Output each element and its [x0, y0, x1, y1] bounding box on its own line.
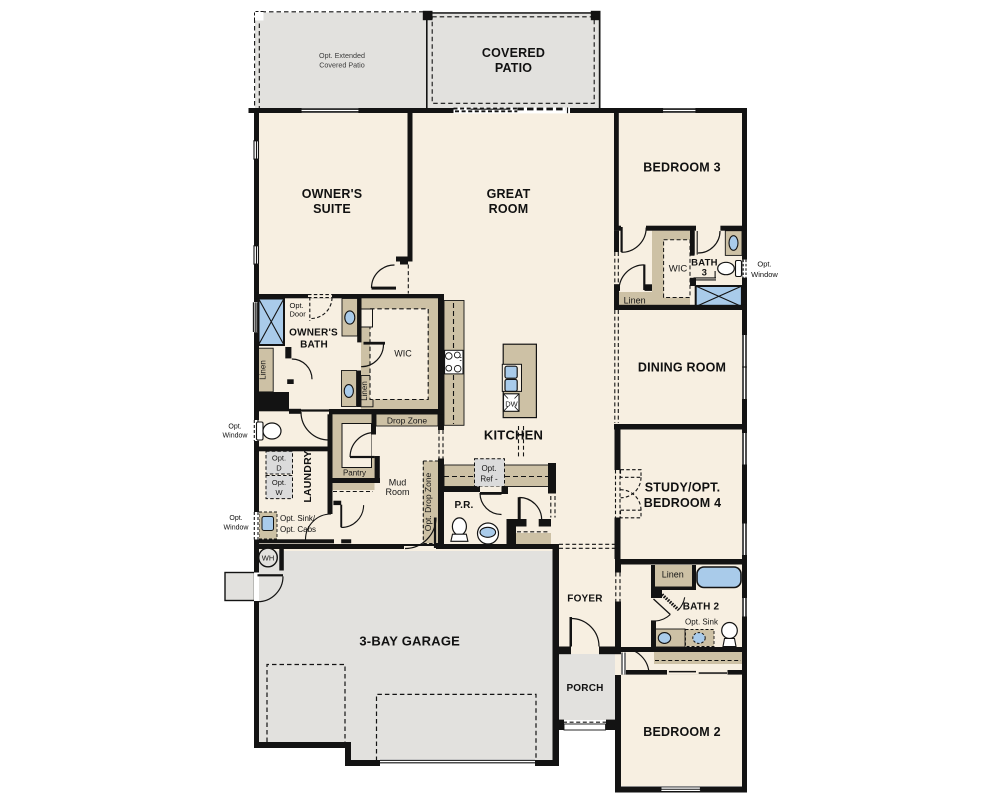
svg-text:Window: Window: [223, 433, 249, 440]
svg-text:BEDROOM 2: BEDROOM 2: [643, 725, 721, 739]
svg-text:BATH 2: BATH 2: [683, 602, 720, 613]
svg-text:Opt. Drop Zone: Opt. Drop Zone: [423, 472, 433, 531]
svg-text:BEDROOM 3: BEDROOM 3: [643, 161, 721, 175]
svg-text:DINING ROOM: DINING ROOM: [638, 361, 726, 375]
svg-text:FOYER: FOYER: [567, 594, 603, 605]
svg-text:Opt. Cabs: Opt. Cabs: [280, 525, 316, 534]
svg-text:D: D: [276, 464, 282, 473]
svg-text:GREAT: GREAT: [487, 187, 531, 201]
svg-text:Opt. Sink: Opt. Sink: [685, 618, 719, 627]
svg-text:W: W: [275, 488, 283, 497]
svg-text:Pantry: Pantry: [343, 469, 366, 478]
svg-text:Opt.: Opt.: [272, 478, 286, 487]
svg-text:PATIO: PATIO: [495, 61, 532, 75]
svg-text:SUITE: SUITE: [313, 202, 351, 216]
svg-text:Door: Door: [290, 310, 307, 319]
svg-text:OWNER'S: OWNER'S: [302, 187, 363, 201]
svg-text:Drop Zone: Drop Zone: [387, 416, 427, 426]
svg-text:3: 3: [702, 268, 707, 279]
svg-text:WH: WH: [262, 554, 275, 563]
svg-text:Linen: Linen: [360, 381, 369, 401]
svg-text:Opt.: Opt.: [228, 424, 241, 431]
svg-text:Window: Window: [224, 525, 250, 532]
svg-text:DW: DW: [505, 400, 518, 409]
svg-text:P.R.: P.R.: [455, 500, 474, 511]
svg-text:BATH: BATH: [300, 340, 328, 351]
svg-text:Opt.: Opt.: [229, 515, 242, 522]
svg-text:ROOM: ROOM: [489, 202, 529, 216]
svg-text:LAUNDRY: LAUNDRY: [302, 450, 314, 502]
svg-text:Ref -: Ref -: [480, 475, 498, 484]
svg-text:OWNER'S: OWNER'S: [289, 328, 338, 339]
svg-text:Opt.: Opt.: [272, 454, 286, 463]
svg-text:Opt.: Opt.: [481, 464, 496, 473]
svg-text:WIC: WIC: [669, 264, 688, 275]
svg-text:Room: Room: [385, 487, 409, 497]
svg-text:COVERED: COVERED: [482, 46, 545, 60]
svg-text:Opt.: Opt.: [757, 260, 771, 269]
svg-text:Covered Patio: Covered Patio: [319, 61, 365, 70]
svg-text:Linen: Linen: [259, 360, 268, 380]
svg-text:Opt. Sink/: Opt. Sink/: [280, 514, 316, 523]
svg-text:Window: Window: [751, 270, 778, 279]
svg-text:Mud: Mud: [389, 478, 407, 488]
svg-text:KITCHEN: KITCHEN: [484, 428, 543, 443]
svg-text:BEDROOM 4: BEDROOM 4: [644, 496, 722, 510]
svg-text:STUDY/OPT.: STUDY/OPT.: [645, 481, 721, 495]
svg-text:3-BAY GARAGE: 3-BAY GARAGE: [359, 634, 460, 649]
svg-text:PORCH: PORCH: [566, 683, 603, 694]
svg-text:Linen: Linen: [662, 570, 684, 580]
svg-text:WIC: WIC: [394, 349, 412, 359]
svg-text:Linen: Linen: [624, 296, 646, 306]
svg-text:Opt. Extended: Opt. Extended: [319, 51, 365, 60]
